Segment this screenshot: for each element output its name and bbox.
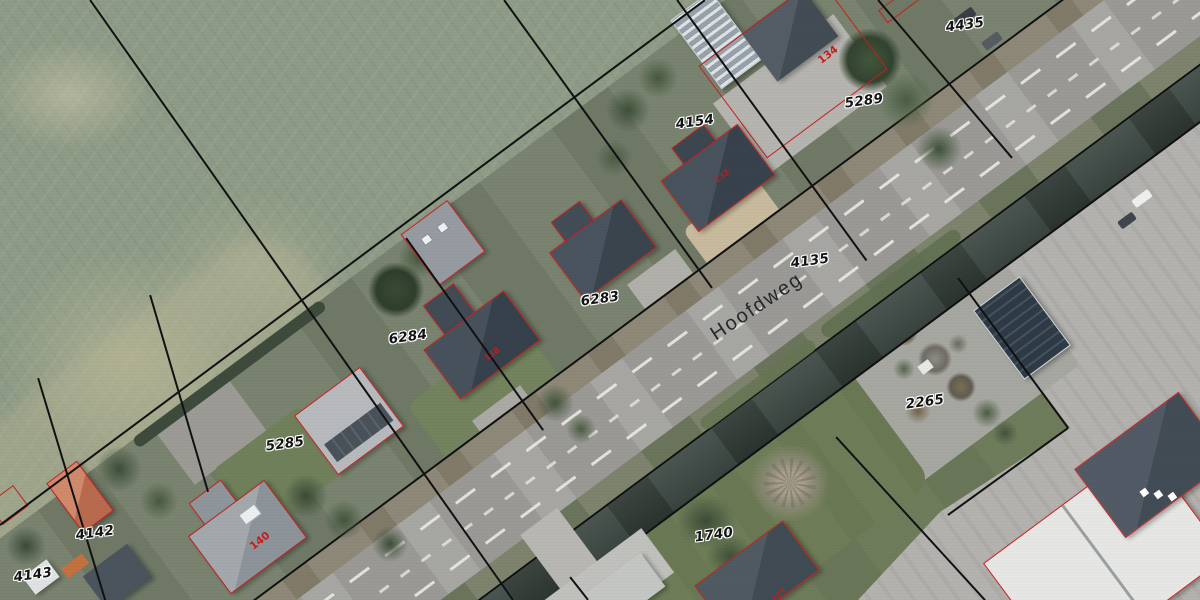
skylight — [436, 221, 449, 234]
junk-pile — [948, 334, 968, 354]
roof-vent — [1167, 492, 1177, 502]
roof-vent — [1153, 490, 1163, 500]
tree — [372, 526, 408, 562]
aerial-map-canvas[interactable]: Hoofdweg 4435 5289 4154 4135 6283 6284 5… — [0, 0, 1200, 600]
tree — [606, 88, 650, 132]
bush — [992, 420, 1018, 446]
tree — [324, 500, 364, 540]
tree — [284, 474, 328, 518]
tree — [878, 72, 934, 128]
bush — [536, 384, 574, 422]
tree — [140, 482, 178, 520]
tree — [96, 446, 142, 492]
tree — [916, 126, 962, 172]
junk-pile — [946, 372, 976, 402]
bare-tree-branches — [764, 458, 816, 508]
junk-pile — [893, 358, 915, 380]
skylight — [238, 503, 262, 525]
tree — [6, 526, 46, 566]
bush — [566, 414, 596, 444]
roof-vent — [1139, 488, 1149, 498]
skylight — [420, 233, 433, 246]
tree — [638, 58, 678, 98]
